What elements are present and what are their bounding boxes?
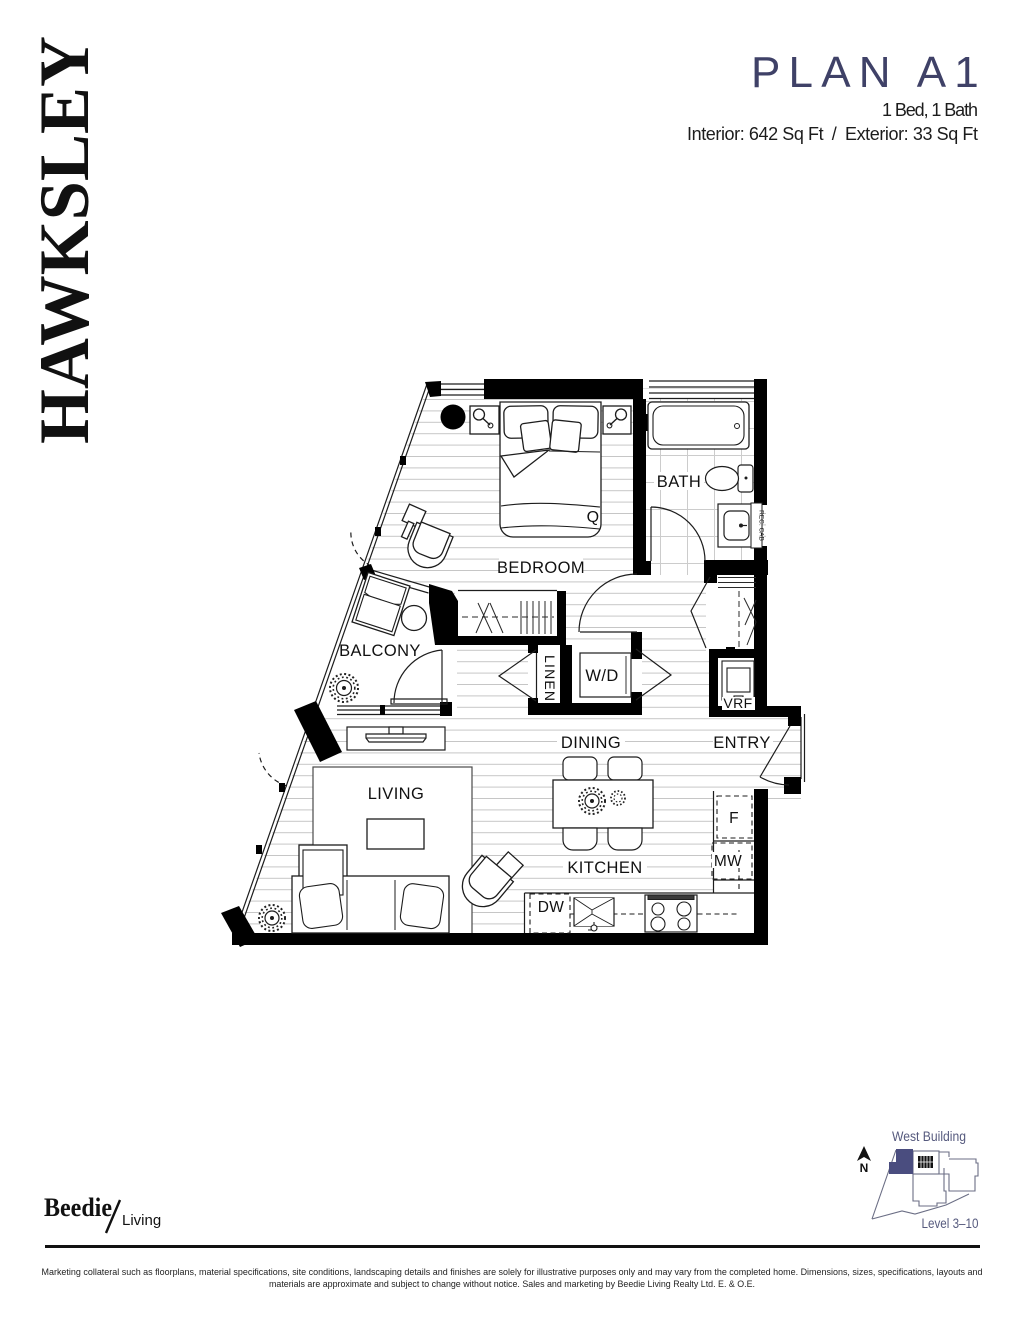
- svg-text:materials are approximate and: materials are approximate and subject to…: [269, 1279, 755, 1289]
- svg-text:BALCONY: BALCONY: [339, 642, 421, 660]
- svg-text:KITCHEN: KITCHEN: [567, 859, 642, 877]
- svg-text:VRF: VRF: [723, 695, 752, 711]
- svg-text:LINEN: LINEN: [542, 655, 558, 702]
- svg-text:HAWKSLEY: HAWKSLEY: [26, 36, 104, 444]
- svg-text:Interior: 642 Sq Ft / Exterior: Interior: 642 Sq Ft / Exterior: 33 Sq Ft: [687, 124, 978, 144]
- svg-text:BEDROOM: BEDROOM: [497, 559, 585, 577]
- svg-text:Q: Q: [587, 509, 600, 526]
- svg-text:1 Bed, 1 Bath: 1 Bed, 1 Bath: [882, 100, 978, 120]
- svg-text:Marketing collateral such as f: Marketing collateral such as floorplans,…: [42, 1267, 983, 1277]
- svg-text:N: N: [860, 1161, 869, 1175]
- svg-text:LIVING: LIVING: [368, 785, 425, 803]
- svg-text:Living: Living: [122, 1212, 161, 1229]
- svg-text:BATH: BATH: [657, 473, 701, 491]
- svg-text:ENTRY: ENTRY: [713, 734, 771, 752]
- svg-text:Beedie: Beedie: [44, 1193, 112, 1222]
- svg-text:Level 3–10: Level 3–10: [922, 1216, 979, 1231]
- svg-text:F: F: [729, 810, 739, 827]
- svg-text:REC. CAB: REC. CAB: [758, 510, 765, 541]
- svg-text:DINING: DINING: [561, 734, 621, 752]
- svg-text:DW: DW: [538, 899, 565, 916]
- svg-text:W/D: W/D: [585, 667, 618, 685]
- svg-text:West Building: West Building: [892, 1129, 966, 1144]
- svg-text:PLAN A1: PLAN A1: [751, 48, 987, 97]
- svg-text:MW: MW: [714, 853, 742, 870]
